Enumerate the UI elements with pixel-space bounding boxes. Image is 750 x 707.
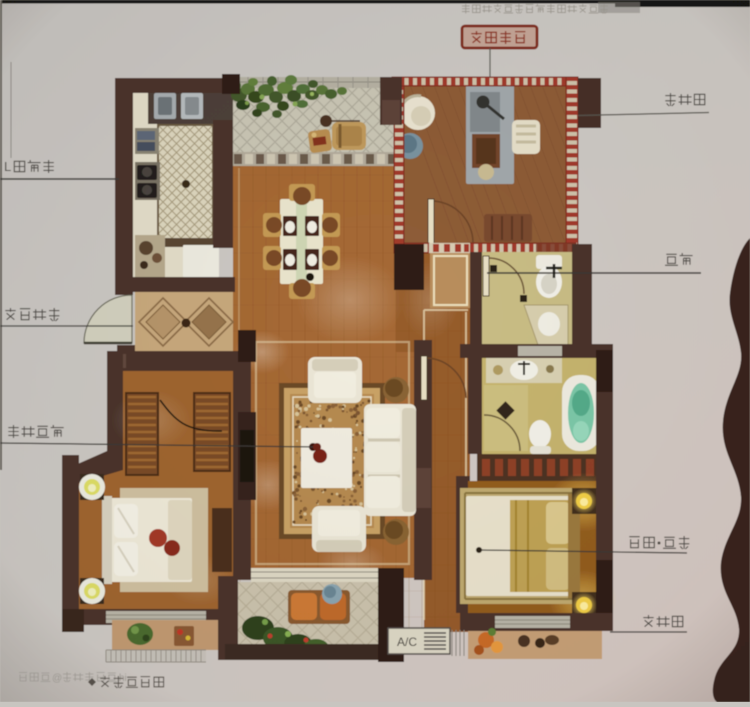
svg-text:@: @ xyxy=(52,673,62,684)
svg-text:L: L xyxy=(4,159,11,174)
